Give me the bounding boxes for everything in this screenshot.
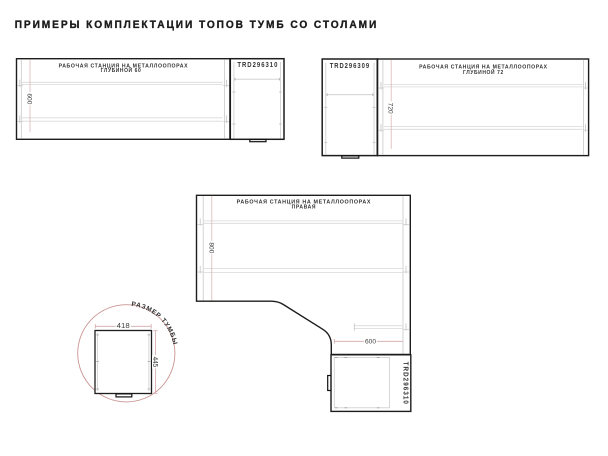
svg-text:TRD296310: TRD296310 (401, 362, 410, 405)
svg-text:TRD296310: TRD296310 (237, 60, 278, 69)
svg-text:600: 600 (365, 338, 376, 345)
svg-text:ПРИМЕРЫ КОМПЛЕКТАЦИИ ТОПОВ ТУМ: ПРИМЕРЫ КОМПЛЕКТАЦИИ ТОПОВ ТУМБ СО СТОЛА… (15, 19, 379, 31)
svg-text:TRD296309: TRD296309 (330, 61, 370, 70)
svg-text:ГЛУБИНОЙ 60: ГЛУБИНОЙ 60 (101, 66, 142, 74)
svg-text:800: 800 (207, 242, 214, 253)
svg-text:720: 720 (387, 103, 394, 114)
svg-text:418: 418 (117, 323, 130, 330)
svg-text:600: 600 (26, 93, 33, 104)
svg-text:ГЛУБИНОЙ 72: ГЛУБИНОЙ 72 (463, 68, 504, 76)
svg-text:445: 445 (151, 357, 158, 368)
svg-text:ПРАВАЯ: ПРАВАЯ (292, 205, 317, 211)
